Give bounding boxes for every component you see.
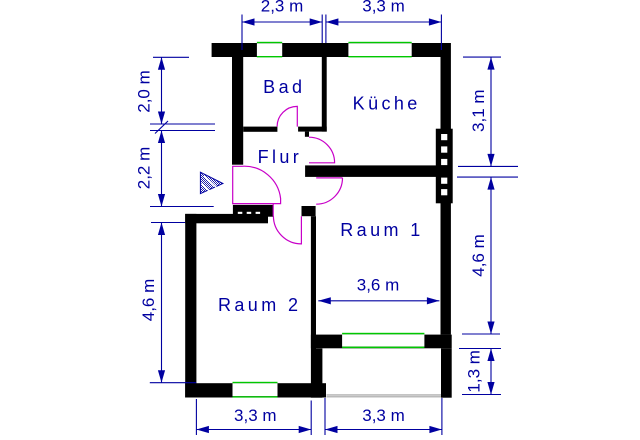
svg-text:Raum 1: Raum 1 [340,220,423,240]
svg-text:3,3 m: 3,3 m [362,406,405,425]
svg-text:2,0 m: 2,0 m [135,70,154,113]
svg-text:3,1 m: 3,1 m [469,89,488,132]
svg-text:1,3 m: 1,3 m [465,350,484,393]
svg-text:Flur: Flur [258,147,303,167]
svg-text:3,3 m: 3,3 m [362,0,405,16]
svg-text:3,6 m: 3,6 m [357,276,400,295]
svg-text:2,3 m: 2,3 m [261,0,304,16]
svg-text:Küche: Küche [353,93,421,113]
svg-text:Bad: Bad [263,77,305,97]
svg-text:4,6 m: 4,6 m [139,279,158,322]
svg-text:3,3 m: 3,3 m [234,406,277,425]
svg-text:2,2 m: 2,2 m [135,147,154,190]
svg-text:Raum 2: Raum 2 [218,295,301,315]
svg-text:4,6 m: 4,6 m [469,234,488,277]
